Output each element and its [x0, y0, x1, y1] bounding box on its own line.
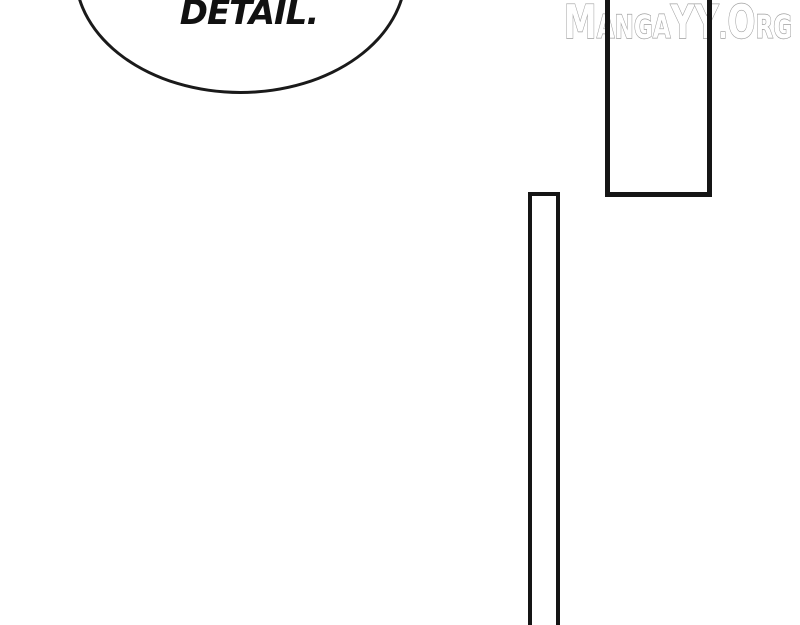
speech-bubble-text: DETAIL. — [124, 0, 374, 30]
panel-rect-tall — [605, 0, 712, 197]
manga-page: DETAIL. MANGAYY.ORG — [0, 0, 800, 625]
panel-rect-thin — [528, 192, 560, 625]
